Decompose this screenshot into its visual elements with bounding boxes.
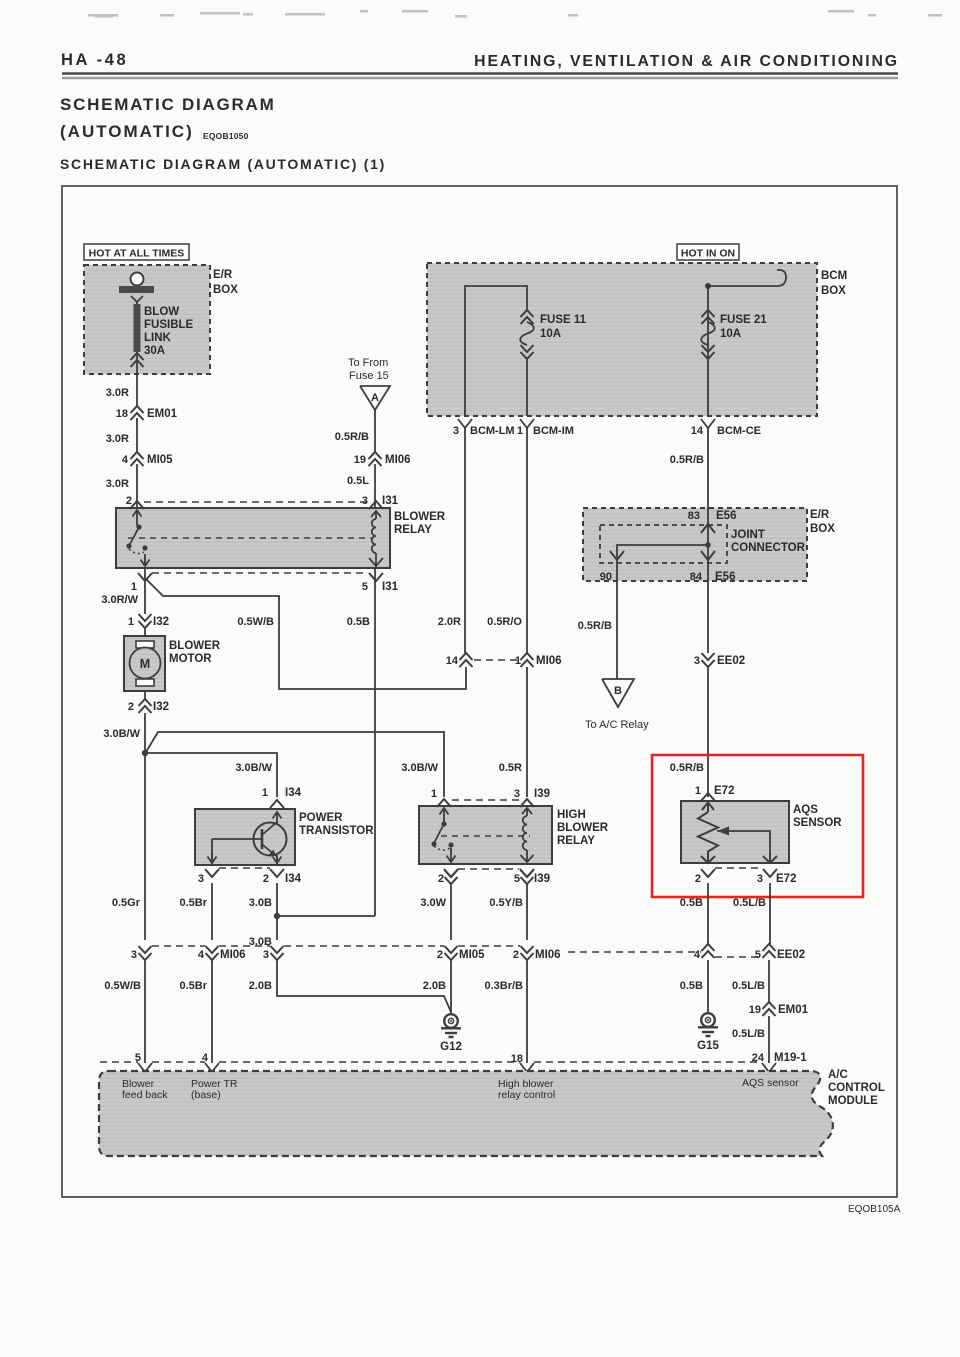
svg-text:2: 2 <box>438 873 444 885</box>
svg-text:EE02: EE02 <box>777 949 805 961</box>
svg-text:HEATING, VENTILATION & AIR CON: HEATING, VENTILATION & AIR CONDITIONING <box>474 53 899 70</box>
svg-text:B: B <box>614 685 622 697</box>
svg-text:I32: I32 <box>153 701 169 713</box>
svg-text:HOT AT ALL TIMES: HOT AT ALL TIMES <box>89 248 185 260</box>
svg-text:19: 19 <box>749 1004 761 1016</box>
svg-text:E72: E72 <box>776 873 796 885</box>
svg-text:4: 4 <box>202 1052 209 1064</box>
svg-text:BCM: BCM <box>821 270 847 282</box>
svg-text:2.0R: 2.0R <box>438 616 461 628</box>
svg-text:3.0R: 3.0R <box>106 478 129 490</box>
svg-text:0.5W/B: 0.5W/B <box>104 980 141 992</box>
svg-text:SCHEMATIC DIAGRAM (AUTOMATIC): SCHEMATIC DIAGRAM (AUTOMATIC) (1) <box>60 156 386 172</box>
svg-text:90: 90 <box>600 571 612 583</box>
svg-text:RELAY: RELAY <box>557 835 595 847</box>
svg-text:10A: 10A <box>540 328 561 340</box>
svg-text:MI06: MI06 <box>220 949 246 961</box>
svg-text:2.0B: 2.0B <box>249 980 272 992</box>
svg-text:BOX: BOX <box>213 284 238 296</box>
svg-text:0.5B: 0.5B <box>680 980 703 992</box>
svg-text:0.5B: 0.5B <box>347 616 370 628</box>
svg-text:0.3Br/B: 0.3Br/B <box>484 980 523 992</box>
svg-text:19: 19 <box>354 454 366 466</box>
svg-text:(AUTOMATIC): (AUTOMATIC) <box>60 122 194 141</box>
svg-text:2.0B: 2.0B <box>423 980 446 992</box>
svg-text:CONTROL: CONTROL <box>828 1082 885 1094</box>
svg-text:SENSOR: SENSOR <box>793 817 842 829</box>
svg-text:BCM-LM: BCM-LM <box>470 425 515 437</box>
svg-text:E/R: E/R <box>810 509 830 521</box>
svg-text:10A: 10A <box>720 328 741 340</box>
svg-text:EQOB1050: EQOB1050 <box>203 131 249 141</box>
svg-text:A/C: A/C <box>828 1069 848 1081</box>
svg-text:1: 1 <box>128 616 134 628</box>
svg-text:0.5L/B: 0.5L/B <box>732 1028 765 1040</box>
svg-text:18: 18 <box>116 408 128 420</box>
svg-text:3: 3 <box>263 949 269 961</box>
svg-text:relay control: relay control <box>498 1089 555 1101</box>
svg-text:84: 84 <box>690 571 703 583</box>
svg-text:83: 83 <box>688 510 700 522</box>
svg-text:0.5R/B: 0.5R/B <box>335 431 369 443</box>
svg-text:I31: I31 <box>382 581 399 593</box>
svg-text:BOX: BOX <box>810 523 835 535</box>
svg-text:3: 3 <box>131 949 137 961</box>
svg-text:MOTOR: MOTOR <box>169 653 212 665</box>
svg-text:0.5W/B: 0.5W/B <box>237 616 274 628</box>
svg-text:BLOWER: BLOWER <box>169 640 221 652</box>
svg-text:I39: I39 <box>534 788 550 800</box>
svg-text:POWER: POWER <box>299 812 343 824</box>
svg-text:BLOWER: BLOWER <box>557 822 609 834</box>
svg-text:AQS sensor: AQS sensor <box>742 1077 799 1089</box>
svg-text:3.0R/W: 3.0R/W <box>101 594 138 606</box>
svg-text:3: 3 <box>198 873 204 885</box>
svg-text:BOX: BOX <box>821 285 846 297</box>
svg-text:I32: I32 <box>153 616 169 628</box>
svg-text:3.0W: 3.0W <box>420 897 446 909</box>
svg-text:A: A <box>371 392 379 404</box>
svg-text:2: 2 <box>513 949 519 961</box>
svg-text:RELAY: RELAY <box>394 524 432 536</box>
svg-text:MI05: MI05 <box>147 454 173 466</box>
svg-text:0.5R: 0.5R <box>499 762 522 774</box>
svg-text:0.5B: 0.5B <box>680 897 703 909</box>
svg-text:feed back: feed back <box>122 1089 168 1101</box>
svg-text:To From: To From <box>348 357 388 369</box>
svg-text:0.5L/B: 0.5L/B <box>732 980 765 992</box>
svg-text:4: 4 <box>198 949 205 961</box>
svg-text:E56: E56 <box>716 510 736 522</box>
svg-text:I34: I34 <box>285 787 302 799</box>
svg-text:14: 14 <box>446 655 459 667</box>
svg-text:I31: I31 <box>382 495 399 507</box>
svg-text:4: 4 <box>122 454 129 466</box>
svg-text:0.5R/B: 0.5R/B <box>670 454 704 466</box>
svg-text:1: 1 <box>517 425 523 437</box>
svg-text:I34: I34 <box>285 873 302 885</box>
svg-text:3: 3 <box>757 873 763 885</box>
svg-text:1: 1 <box>262 787 268 799</box>
svg-text:1: 1 <box>515 655 521 667</box>
svg-text:G15: G15 <box>697 1040 719 1052</box>
svg-text:HA -48: HA -48 <box>61 51 128 69</box>
svg-text:G12: G12 <box>440 1041 462 1053</box>
svg-text:CONNECTOR: CONNECTOR <box>731 542 806 554</box>
svg-text:EE02: EE02 <box>717 655 745 667</box>
svg-text:0.5R/O: 0.5R/O <box>487 616 522 628</box>
svg-text:TRANSISTOR: TRANSISTOR <box>299 825 374 837</box>
svg-text:30A: 30A <box>144 345 165 357</box>
svg-text:3.0B: 3.0B <box>249 897 272 909</box>
svg-text:1: 1 <box>431 788 437 800</box>
svg-text:MI06: MI06 <box>385 454 411 466</box>
svg-text:2: 2 <box>437 949 443 961</box>
svg-text:0.5L/B: 0.5L/B <box>733 897 766 909</box>
svg-text:2: 2 <box>263 873 269 885</box>
svg-text:3.0B/W: 3.0B/W <box>401 762 438 774</box>
svg-text:MI06: MI06 <box>536 655 562 667</box>
svg-text:3.0B/W: 3.0B/W <box>103 728 140 740</box>
svg-text:Fuse 15: Fuse 15 <box>349 370 389 382</box>
svg-text:(base): (base) <box>191 1089 221 1101</box>
svg-text:HIGH: HIGH <box>557 809 586 821</box>
svg-text:0.5Br: 0.5Br <box>179 980 207 992</box>
svg-text:3.0R: 3.0R <box>106 387 129 399</box>
svg-text:1: 1 <box>695 785 701 797</box>
svg-text:5: 5 <box>755 949 761 961</box>
svg-text:BCM-IM: BCM-IM <box>533 425 574 437</box>
svg-text:MI06: MI06 <box>535 949 561 961</box>
svg-text:MODULE: MODULE <box>828 1095 878 1107</box>
svg-text:MI05: MI05 <box>459 949 485 961</box>
svg-text:BLOWER: BLOWER <box>394 511 446 523</box>
svg-text:AQS: AQS <box>793 804 818 816</box>
svg-text:E72: E72 <box>714 785 734 797</box>
svg-text:FUSE 11: FUSE 11 <box>540 314 587 326</box>
svg-text:0.5R/B: 0.5R/B <box>578 620 612 632</box>
svg-text:M19-1: M19-1 <box>774 1052 807 1064</box>
svg-text:4: 4 <box>694 949 701 961</box>
svg-text:M: M <box>140 657 150 671</box>
svg-text:2: 2 <box>128 701 134 713</box>
svg-text:0.5L: 0.5L <box>347 475 369 487</box>
svg-text:3: 3 <box>453 425 459 437</box>
svg-text:SCHEMATIC DIAGRAM: SCHEMATIC DIAGRAM <box>60 95 275 114</box>
svg-text:BLOW: BLOW <box>144 306 179 318</box>
svg-text:EM01: EM01 <box>778 1004 809 1016</box>
svg-text:3: 3 <box>694 655 700 667</box>
svg-text:0.5Y/B: 0.5Y/B <box>489 897 523 909</box>
svg-text:3: 3 <box>514 788 520 800</box>
svg-text:LINK: LINK <box>144 332 172 344</box>
svg-text:0.5Br: 0.5Br <box>179 897 207 909</box>
svg-text:EM01: EM01 <box>147 408 178 420</box>
svg-text:JOINT: JOINT <box>731 529 765 541</box>
svg-text:HOT IN ON: HOT IN ON <box>681 248 735 260</box>
svg-text:2: 2 <box>695 873 701 885</box>
svg-text:FUSE 21: FUSE 21 <box>720 314 767 326</box>
svg-text:14: 14 <box>691 425 704 437</box>
svg-text:3.0R: 3.0R <box>106 433 129 445</box>
svg-text:2: 2 <box>126 495 132 507</box>
svg-text:0.5R/B: 0.5R/B <box>670 762 704 774</box>
svg-text:5: 5 <box>135 1052 141 1064</box>
svg-text:1: 1 <box>131 581 137 593</box>
svg-text:5: 5 <box>514 873 520 885</box>
svg-text:0.5Gr: 0.5Gr <box>112 897 141 909</box>
svg-text:E56: E56 <box>715 571 735 583</box>
svg-text:BCM-CE: BCM-CE <box>717 425 761 437</box>
svg-text:E/R: E/R <box>213 269 233 281</box>
svg-text:5: 5 <box>362 581 368 593</box>
svg-text:3.0B/W: 3.0B/W <box>235 762 272 774</box>
svg-text:I39: I39 <box>534 873 550 885</box>
svg-text:FUSIBLE: FUSIBLE <box>144 319 194 331</box>
svg-text:To A/C Relay: To A/C Relay <box>585 719 649 731</box>
svg-text:EQOB105A: EQOB105A <box>848 1204 901 1215</box>
svg-text:3: 3 <box>362 495 368 507</box>
